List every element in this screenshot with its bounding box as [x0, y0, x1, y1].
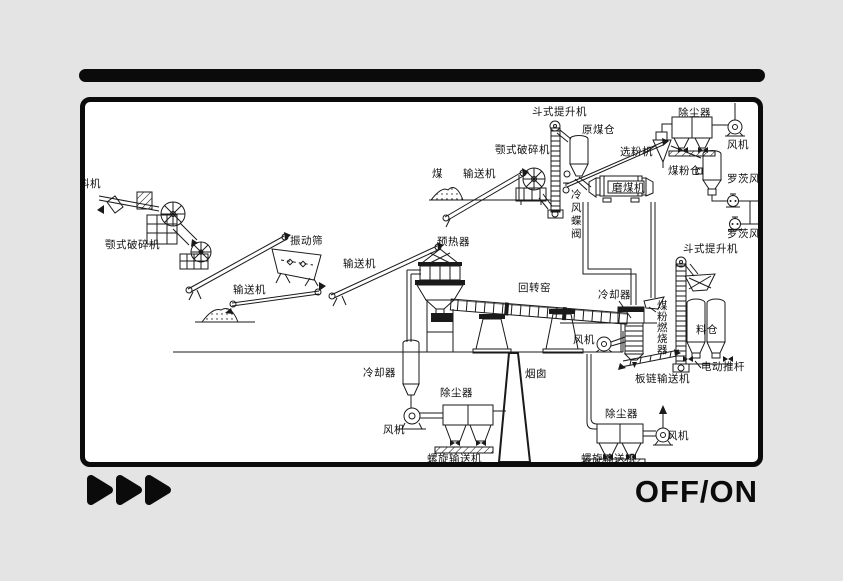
label-fan-kiln: 风机 — [573, 333, 595, 346]
process-flow-diagram: 料机颚式破碎机振动筛输送机输送机预热器煤输送机颚式破碎机斗式提升机原煤仓选粉机除… — [85, 102, 758, 462]
stock-pile-symbol — [202, 309, 238, 323]
jaw-crusher-symbol-3 — [516, 168, 552, 209]
fast-forward-icon — [91, 479, 167, 501]
label-plate-chain-conveyor: 板链输送机 — [635, 372, 690, 385]
label-coal-powder-bunker: 煤粉仓 — [668, 164, 701, 177]
label-coal: 煤 — [432, 167, 443, 180]
label-vibrating-screen: 振动筛 — [290, 234, 323, 247]
label-jaw-crusher-left: 颚式破碎机 — [105, 238, 160, 251]
label-coal-powder-burner: 煤粉燃烧器 — [657, 299, 668, 356]
roots-blowers-symbol — [712, 194, 758, 230]
coal-pile-symbol — [431, 188, 463, 200]
fan-top-symbol — [712, 103, 745, 136]
label-cooler-left: 冷却器 — [363, 366, 396, 379]
label-bucket-elevator-1: 斗式提升机 — [532, 105, 587, 118]
jaw-crusher-symbol-2 — [180, 242, 211, 269]
label-dust-collector-2: 除尘器 — [440, 386, 473, 399]
feeder-symbol — [97, 192, 159, 214]
label-conveyor-3: 输送机 — [463, 167, 496, 180]
label-dust-collector-1: 除尘器 — [678, 106, 711, 119]
bucket-elevator-symbol-2 — [673, 257, 698, 372]
label-conveyor-2: 输送机 — [343, 257, 376, 270]
label-silo: 料仓 — [696, 323, 718, 336]
page: { "colors": { "background": "#e4e4e4", "… — [0, 0, 843, 581]
dust-collector-symbol-1 — [669, 117, 715, 156]
label-cold-air-butterfly-valve: 冷风蝶阀 — [571, 188, 582, 240]
label-bucket-elevator-2: 斗式提升机 — [683, 242, 738, 255]
duct-to-dc3 — [587, 354, 597, 429]
label-fan-right: 风机 — [667, 429, 689, 442]
conveyor-symbol-3 — [329, 242, 444, 306]
cooler-left-symbol — [403, 340, 419, 408]
label-roots-blower-1: 罗茨风机 — [727, 172, 758, 185]
label-feeder: 料机 — [85, 177, 101, 190]
label-roots-blower-2: 罗茨风机 — [727, 227, 758, 240]
label-coal-mill: 磨煤机 — [612, 181, 645, 194]
silos-symbol — [685, 274, 725, 358]
label-dust-collector-3: 除尘器 — [605, 407, 638, 420]
cold-air-valve-symbol — [563, 183, 569, 193]
diagram-frame: 料机颚式破碎机振动筛输送机输送机预热器煤输送机颚式破碎机斗式提升机原煤仓选粉机除… — [80, 97, 763, 467]
raw-coal-bunker-symbol — [564, 136, 591, 191]
label-classifier: 选粉机 — [620, 145, 653, 158]
label-conveyor-1: 输送机 — [233, 283, 266, 296]
label-fan-1: 风机 — [727, 138, 749, 151]
top-bar — [79, 69, 765, 82]
bucket-elevator-symbol-1 — [548, 121, 571, 218]
label-fan-left: 风机 — [383, 423, 405, 436]
label-chimney: 烟囱 — [525, 367, 547, 380]
label-jaw-crusher-coal: 颚式破碎机 — [495, 143, 550, 156]
label-rotary-kiln: 回转窑 — [518, 281, 551, 294]
vibrating-screen-symbol — [272, 249, 326, 291]
fast-forward-button[interactable] — [84, 472, 180, 510]
label-screw-conveyor-1: 螺旋输送机 — [427, 452, 482, 462]
label-cooler-kiln: 冷却器 — [598, 288, 631, 301]
label-electric-push-rod: 电动推杆 — [701, 360, 745, 373]
label-raw-coal-bunker: 原煤仓 — [582, 123, 615, 136]
label-preheater: 预热器 — [437, 235, 470, 248]
dust-collector-symbol-2 — [435, 405, 506, 453]
label-screw-conveyor-2: 螺旋输送机 — [581, 452, 636, 462]
onoff-toggle[interactable]: OFF/ON — [635, 474, 758, 510]
